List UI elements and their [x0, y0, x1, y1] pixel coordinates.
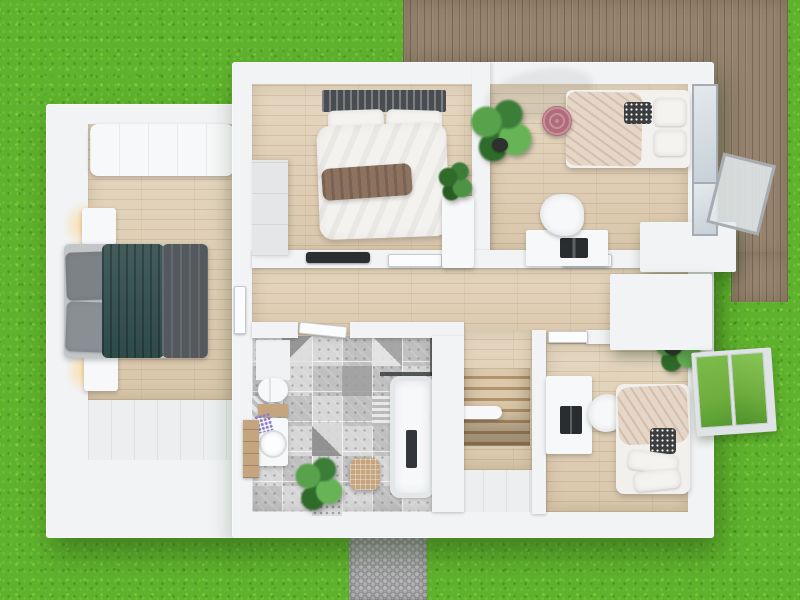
laundry-basket: [350, 458, 380, 490]
door-master: [234, 286, 246, 334]
wooden-cabinet: [243, 420, 259, 478]
door-bedroom-br: [548, 331, 588, 343]
house-left-wing: [46, 104, 236, 538]
bed-headboard-slats: [322, 90, 446, 112]
wall-bathroom-top-left: [252, 322, 298, 338]
garden-window-pane-right: [730, 352, 768, 426]
wardrobe: [252, 160, 288, 256]
plant-pedestal: [442, 196, 474, 268]
fiddle-leaf-plant: [466, 98, 534, 166]
floor-plan-render: [0, 0, 800, 600]
laptop: [560, 238, 588, 258]
master-duvet-teal: [102, 244, 164, 358]
knitted-pouf: [542, 106, 572, 136]
nightstand-top: [82, 208, 116, 245]
swivel-chair: [540, 194, 584, 236]
bed-single-right: [566, 90, 690, 168]
deck-terrace-step: [731, 252, 788, 302]
master-closet-strip: [88, 400, 232, 460]
pillow: [654, 130, 686, 156]
wall-bedroom-br-left: [532, 330, 546, 514]
pillow: [633, 468, 681, 493]
stair-landing: [460, 470, 532, 512]
door-bedroom-middle: [388, 254, 442, 267]
pillow: [654, 98, 686, 126]
wall-bathroom-right: [432, 336, 464, 512]
master-drape-gray: [162, 244, 208, 358]
tile-accent: [342, 366, 372, 396]
garden-window: [691, 347, 777, 436]
master-sofa: [90, 124, 234, 176]
toilet: [258, 378, 288, 402]
plant-pot: [492, 138, 508, 152]
throw-blanket: [321, 163, 413, 201]
round-basin: [259, 430, 287, 458]
bathtub: [390, 376, 434, 498]
laptop: [560, 406, 582, 434]
roof-dormer-b: [610, 274, 712, 350]
patterned-cushion: [624, 102, 652, 124]
master-bed: [64, 244, 208, 358]
cobblestone-path: [349, 536, 427, 600]
hall-wall-shelf: [306, 252, 370, 263]
bed-single-bottom: [616, 384, 690, 494]
nightstand-bottom: [84, 354, 118, 391]
bathroom-plant: [293, 455, 343, 515]
garden-window-pane-left: [695, 354, 733, 428]
tile-accent: [372, 336, 402, 366]
shower-column: [406, 430, 417, 468]
corner-window-pane-1: [692, 84, 718, 184]
tile-accent: [312, 426, 342, 456]
bathroom-corner-mat: [256, 340, 290, 380]
patterned-cushion: [650, 428, 676, 454]
roof-dormer-a: [640, 222, 736, 272]
